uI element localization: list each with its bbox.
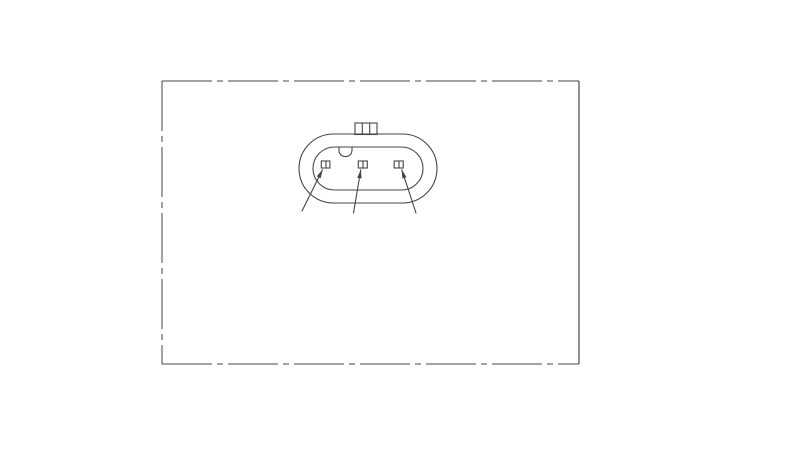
pin-3: [394, 161, 403, 168]
leader-pin-2: [354, 170, 361, 213]
connector-technical-drawing: [0, 0, 800, 451]
connector-face: [299, 123, 437, 213]
drawing-page: [0, 0, 800, 451]
pin-2: [358, 161, 367, 168]
pin-1: [321, 161, 330, 168]
key-notch: [339, 148, 352, 157]
latch-tab: [355, 123, 377, 135]
leader-pin-1: [302, 170, 323, 211]
leader-pin-3: [402, 170, 416, 213]
connector-outer-shell: [299, 134, 437, 203]
